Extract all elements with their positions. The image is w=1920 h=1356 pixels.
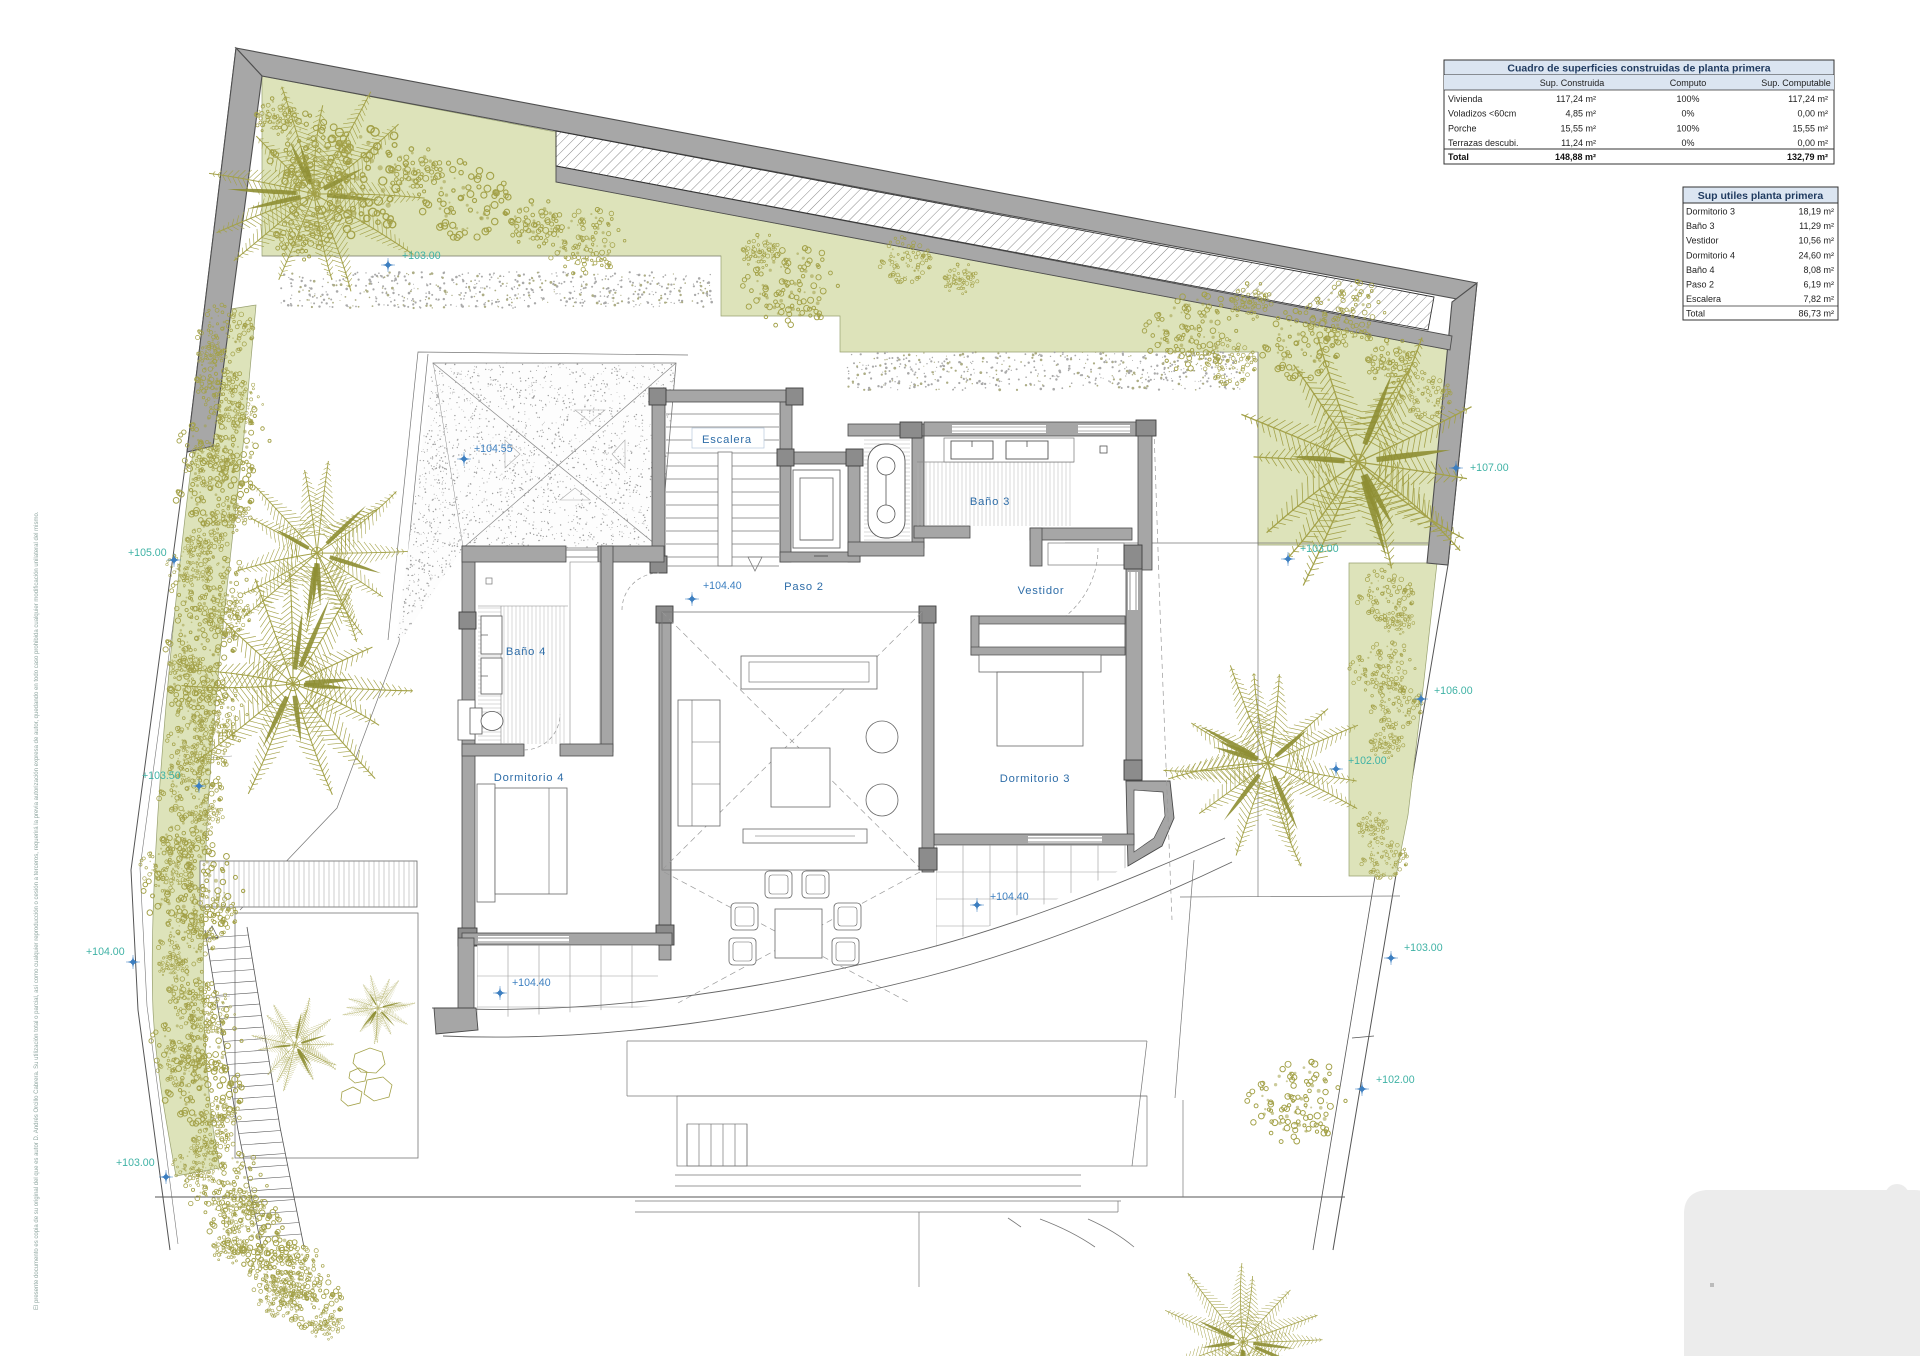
svg-text:Baño 3: Baño 3 (1686, 221, 1715, 231)
svg-text:117,24 m²: 117,24 m² (1788, 94, 1828, 104)
svg-text:Dormitorio 4: Dormitorio 4 (494, 772, 565, 784)
svg-text:Vestidor: Vestidor (1018, 585, 1065, 597)
svg-text:8,08 m²: 8,08 m² (1803, 265, 1834, 275)
svg-text:+103.00: +103.00 (402, 250, 441, 262)
svg-text:+103.00: +103.00 (116, 1157, 155, 1169)
svg-text:+107.00: +107.00 (1470, 462, 1509, 474)
svg-text:+104.55: +104.55 (474, 443, 513, 455)
svg-text:0,00 m²: 0,00 m² (1797, 109, 1828, 119)
svg-text:117,24 m²: 117,24 m² (1556, 94, 1596, 104)
svg-text:100%: 100% (1676, 123, 1699, 133)
svg-text:Vivienda: Vivienda (1448, 94, 1482, 104)
svg-text:Vestidor: Vestidor (1686, 236, 1719, 246)
svg-text:Computo: Computo (1670, 78, 1707, 88)
svg-text:86,73 m²: 86,73 m² (1798, 309, 1834, 319)
svg-text:+106.00: +106.00 (1434, 685, 1473, 697)
svg-text:+104.40: +104.40 (990, 891, 1029, 903)
svg-text:Baño 4: Baño 4 (506, 646, 546, 658)
svg-text:132,79 m²: 132,79 m² (1787, 152, 1828, 162)
svg-text:0,00 m²: 0,00 m² (1797, 138, 1828, 148)
svg-text:18,19 m²: 18,19 m² (1798, 207, 1834, 217)
svg-text:11,24 m²: 11,24 m² (1561, 138, 1596, 148)
svg-text:100%: 100% (1676, 94, 1699, 104)
svg-text:+102.00: +102.00 (1348, 755, 1387, 767)
svg-text:Escalera: Escalera (1686, 294, 1721, 304)
svg-text:+103.00: +103.00 (1300, 543, 1339, 555)
svg-text:+103.50: +103.50 (142, 770, 181, 782)
svg-text:10,56 m²: 10,56 m² (1798, 236, 1834, 246)
svg-text:Dormitorio 3: Dormitorio 3 (1686, 207, 1735, 217)
svg-text:Paso 2: Paso 2 (784, 581, 824, 593)
svg-text:+105.00: +105.00 (128, 547, 167, 559)
svg-text:Baño 4: Baño 4 (1686, 265, 1715, 275)
svg-text:7,82 m²: 7,82 m² (1803, 294, 1834, 304)
svg-text:0%: 0% (1681, 138, 1694, 148)
svg-text:+104.00: +104.00 (86, 946, 125, 958)
svg-text:Porche: Porche (1448, 123, 1477, 133)
svg-text:Terrazas descubi.: Terrazas descubi. (1448, 138, 1519, 148)
svg-text:Cuadro de superficies construi: Cuadro de superficies construidas de pla… (1507, 63, 1770, 75)
svg-text:Sup. Construida: Sup. Construida (1540, 78, 1605, 88)
svg-text:24,60 m²: 24,60 m² (1798, 250, 1834, 260)
svg-text:0%: 0% (1681, 109, 1694, 119)
svg-text:+102.00: +102.00 (1376, 1074, 1415, 1086)
svg-text:Dormitorio 3: Dormitorio 3 (1000, 773, 1071, 785)
svg-text:+104.40: +104.40 (703, 580, 742, 592)
svg-text:Voladizos <60cm: Voladizos <60cm (1448, 109, 1516, 119)
svg-text:+104.40: +104.40 (512, 977, 551, 989)
svg-text:El presente documento es copia: El presente documento es copia de su ori… (34, 511, 40, 1310)
svg-text:15,55 m²: 15,55 m² (1560, 123, 1596, 133)
svg-text:4,85 m²: 4,85 m² (1565, 109, 1596, 119)
svg-text:Sup utiles planta primera: Sup utiles planta primera (1698, 190, 1824, 202)
svg-text:Sup. Computable: Sup. Computable (1761, 78, 1831, 88)
svg-text:Escalera: Escalera (702, 434, 752, 446)
svg-text:Paso 2: Paso 2 (1686, 280, 1714, 290)
svg-text:15,55 m²: 15,55 m² (1792, 123, 1828, 133)
svg-text:Dormitorio 4: Dormitorio 4 (1686, 250, 1735, 260)
svg-text:11,29 m²: 11,29 m² (1799, 221, 1834, 231)
svg-text:148,88 m²: 148,88 m² (1555, 152, 1596, 162)
svg-text:+103.00: +103.00 (1404, 942, 1443, 954)
svg-text:Total: Total (1686, 309, 1705, 319)
svg-text:Baño 3: Baño 3 (970, 496, 1010, 508)
svg-text:6,19 m²: 6,19 m² (1803, 280, 1834, 290)
svg-text:Total: Total (1448, 152, 1469, 162)
